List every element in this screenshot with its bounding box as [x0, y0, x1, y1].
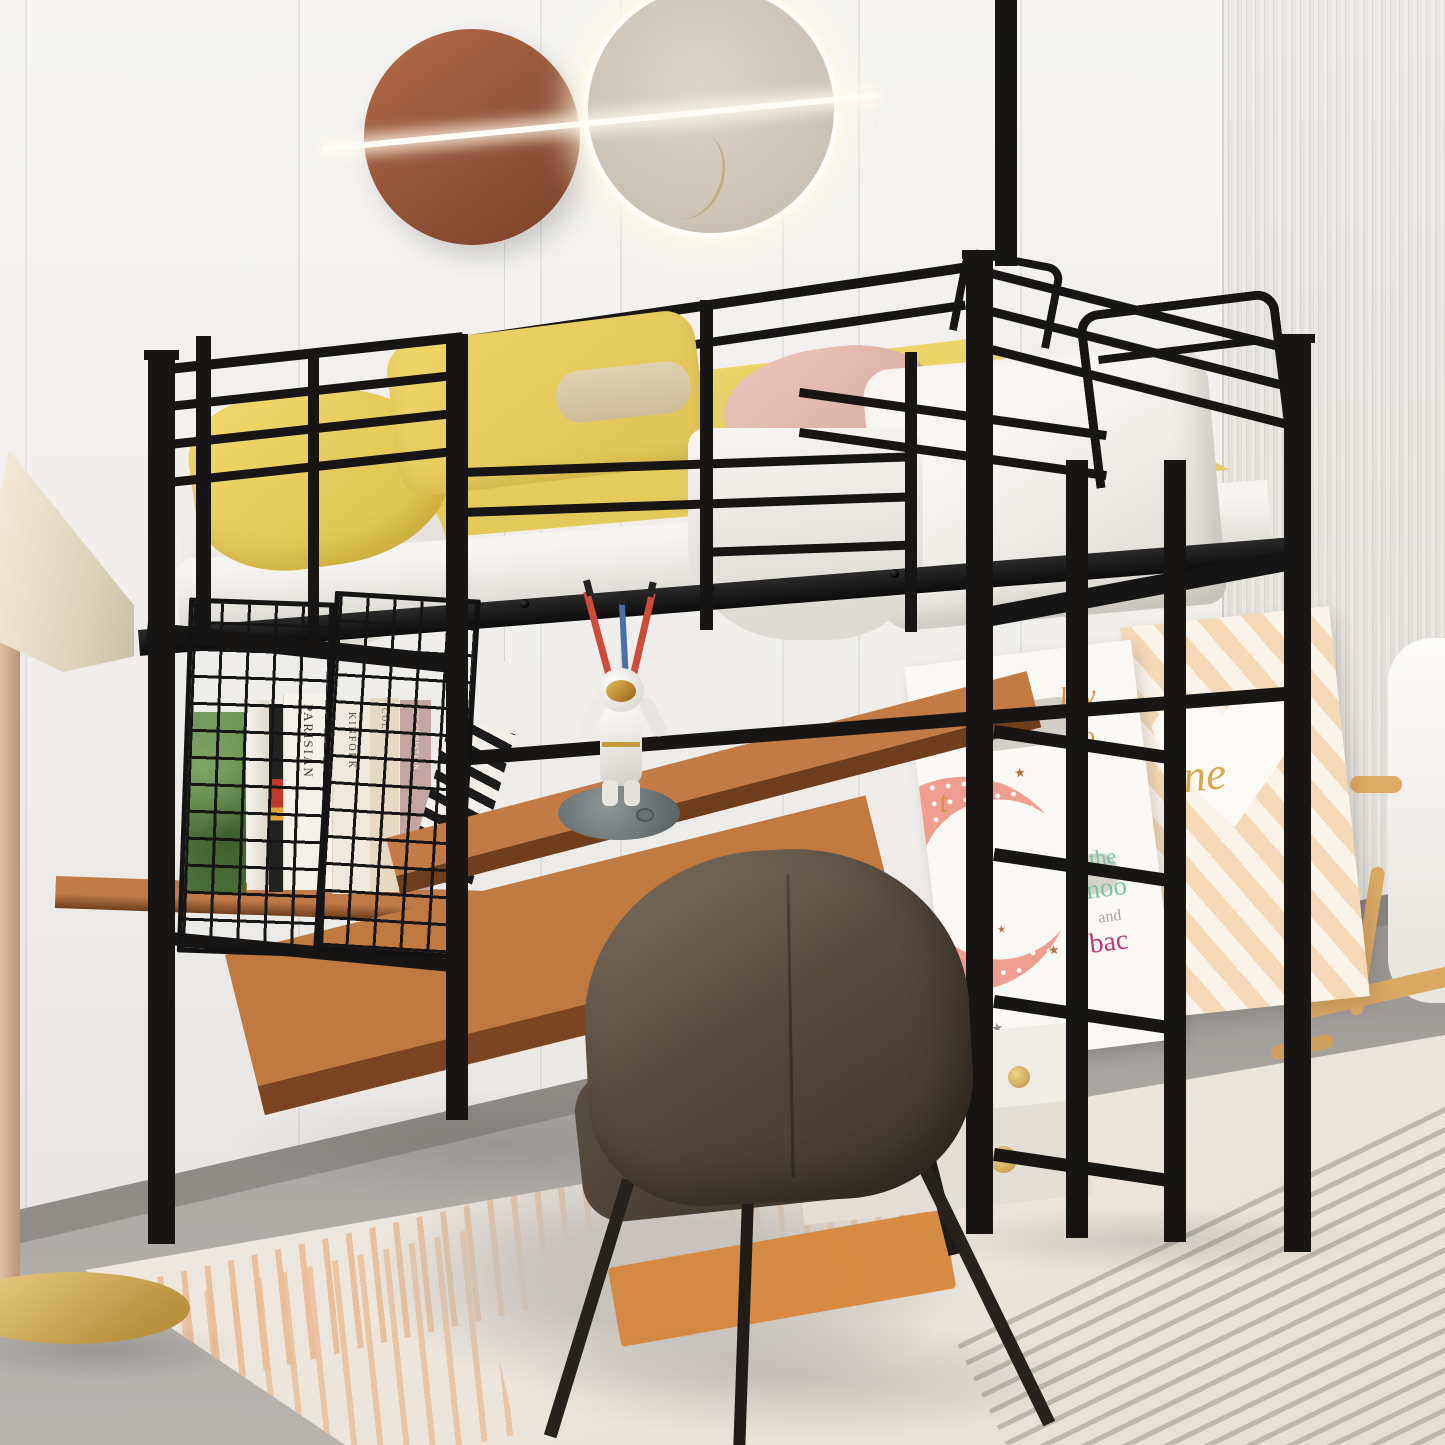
bolt	[520, 599, 529, 608]
bed-post-front-right	[1284, 342, 1311, 1252]
astronaut-visor	[606, 680, 636, 702]
astronaut-rock-base	[558, 786, 680, 840]
star-icon: ★	[1047, 943, 1060, 957]
pencil-tip	[620, 592, 627, 605]
rail-stile	[196, 336, 211, 646]
bolt	[890, 569, 899, 578]
rocking-chair-shell	[1388, 638, 1445, 1003]
astronaut-leg	[624, 780, 640, 806]
gold-clasp	[1008, 1066, 1030, 1088]
ladder-rail	[1164, 460, 1186, 1242]
ceiling-pole	[995, 0, 1017, 266]
rail-stile	[700, 300, 713, 630]
bed-post-mid	[446, 334, 468, 1120]
star-icon: ★	[1013, 765, 1026, 779]
rocking-chair-knob	[1350, 776, 1402, 793]
astronaut-leg	[602, 780, 618, 806]
mesh-grid-panel	[177, 598, 335, 958]
lamp-pole	[0, 640, 20, 1290]
entry-guardrail	[1075, 288, 1298, 488]
poster-word: bac	[1088, 924, 1130, 960]
chair-back-seam	[786, 874, 794, 1177]
ladder-rail	[1066, 460, 1088, 1238]
bed-post-front-left	[148, 358, 175, 1244]
rail-stile	[905, 352, 917, 632]
rail-stile	[308, 352, 319, 642]
room-photo: ine ★ ★ ★ ★ ★ ★ ★ lov yo t the moo and b…	[0, 0, 1445, 1445]
astronaut-gold-band	[602, 742, 640, 747]
rock-crater	[636, 808, 654, 822]
star-icon: ★	[997, 925, 1007, 936]
